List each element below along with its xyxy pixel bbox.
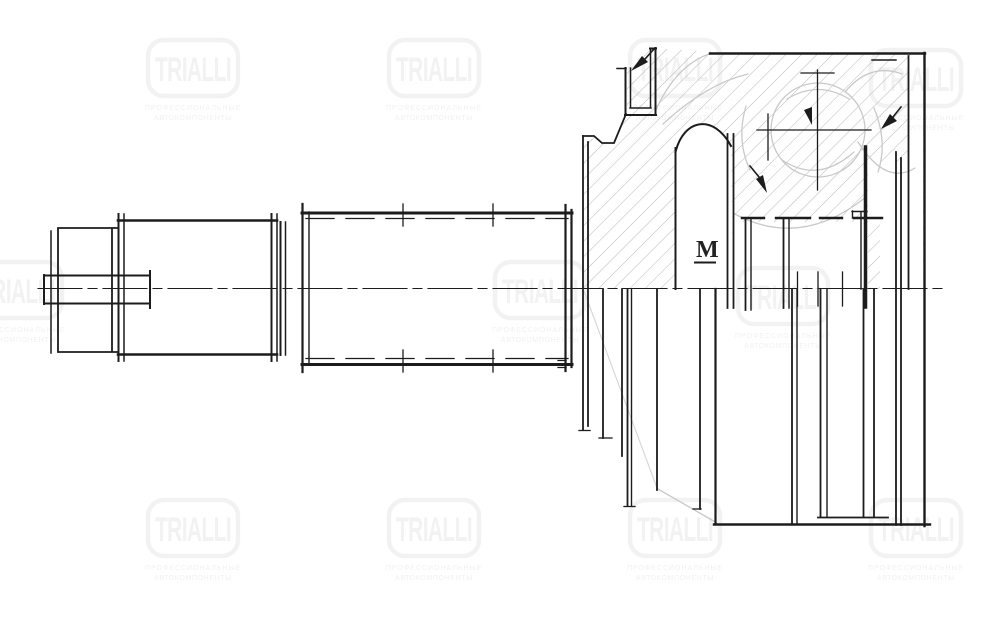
trialli-watermark: TRIALLI ПРОФЕССИОНАЛЬНЫЕ АВТОКОМПОНЕНТЫ xyxy=(492,262,588,344)
svg-text:ПРОФЕССИОНАЛЬНЫЕ: ПРОФЕССИОНАЛЬНЫЕ xyxy=(145,565,241,572)
cv-joint-outer-drawing: TRIALLI ПРОФЕССИОНАЛЬНЫЕ АВТОКОМПОНЕНТЫ … xyxy=(0,0,986,632)
svg-text:АВТОКОМПОНЕНТЫ: АВТОКОМПОНЕНТЫ xyxy=(0,337,56,344)
svg-text:АВТОКОМПОНЕНТЫ: АВТОКОМПОНЕНТЫ xyxy=(501,337,579,344)
trialli-watermark: TRIALLI ПРОФЕССИОНАЛЬНЫЕ АВТОКОМПОНЕНТЫ xyxy=(145,40,241,122)
watermark-brand-text: TRIALLI xyxy=(155,51,231,89)
svg-text:TRIALLI: TRIALLI xyxy=(396,511,472,549)
spline-shaft-left-section xyxy=(118,214,286,361)
svg-text:TRIALLI: TRIALLI xyxy=(637,511,713,549)
trialli-watermark: TRIALLI ПРОФЕССИОНАЛЬНЫЕ АВТОКОМПОНЕНТЫ xyxy=(627,500,723,582)
svg-text:ПРОФЕССИОНАЛЬНЫЕ: ПРОФЕССИОНАЛЬНЫЕ xyxy=(386,105,482,112)
svg-text:АВТОКОМПОНЕНТЫ: АВТОКОМПОНЕНТЫ xyxy=(877,575,955,582)
cv-joint-technical-drawing-page: TRIALLI ПРОФЕССИОНАЛЬНЫЕ АВТОКОМПОНЕНТЫ … xyxy=(0,0,986,632)
svg-text:ПРОФЕССИОНАЛЬНЫЕ: ПРОФЕССИОНАЛЬНЫЕ xyxy=(386,565,482,572)
svg-text:ПРОФЕССИОНАЛЬНЫЕ: ПРОФЕССИОНАЛЬНЫЕ xyxy=(0,327,65,334)
thread-label-group: M xyxy=(695,237,719,263)
svg-text:ПРОФЕССИОНАЛЬНЫЕ: ПРОФЕССИОНАЛЬНЫЕ xyxy=(735,333,831,340)
svg-text:TRIALLI: TRIALLI xyxy=(878,511,954,549)
trialli-watermark: TRIALLI ПРОФЕССИОНАЛЬНЫЕ АВТОКОМПОНЕНТЫ xyxy=(868,500,964,582)
housing-section-hatch xyxy=(584,48,924,289)
boot-cone-ghost-line xyxy=(584,291,657,488)
svg-text:АВТОКОМПОНЕНТЫ: АВТОКОМПОНЕНТЫ xyxy=(744,343,822,350)
svg-text:TRIALLI: TRIALLI xyxy=(396,51,472,89)
svg-text:ПРОФЕССИОНАЛЬНЫЕ: ПРОФЕССИОНАЛЬНЫЕ xyxy=(868,565,964,572)
trialli-watermark: TRIALLI ПРОФЕССИОНАЛЬНЫЕ АВТОКОМПОНЕНТЫ xyxy=(145,500,241,582)
trialli-watermark: TRIALLI ПРОФЕССИОНАЛЬНЫЕ АВТОКОМПОНЕНТЫ xyxy=(386,40,482,122)
svg-text:ПРОФЕССИОНАЛЬНЫЕ: ПРОФЕССИОНАЛЬНЫЕ xyxy=(627,565,723,572)
svg-text:TRIALLI: TRIALLI xyxy=(155,511,231,549)
svg-text:АВТОКОМПОНЕНТЫ: АВТОКОМПОНЕНТЫ xyxy=(395,115,473,122)
thread-label: M xyxy=(696,237,719,263)
svg-text:АВТОКОМПОНЕНТЫ: АВТОКОМПОНЕНТЫ xyxy=(636,575,714,582)
trialli-watermark: TRIALLI ПРОФЕССИОНАЛЬНЫЕ АВТОКОМПОНЕНТЫ xyxy=(386,500,482,582)
svg-text:TRIALLI: TRIALLI xyxy=(0,273,55,311)
watermark-subtext: АВТОКОМПОНЕНТЫ xyxy=(154,115,232,122)
watermark-subtext: ПРОФЕССИОНАЛЬНЫЕ xyxy=(145,105,241,112)
svg-text:АВТОКОМПОНЕНТЫ: АВТОКОМПОНЕНТЫ xyxy=(395,575,473,582)
svg-text:АВТОКОМПОНЕНТЫ: АВТОКОМПОНЕНТЫ xyxy=(154,575,232,582)
svg-text:ПРОФЕССИОНАЛЬНЫЕ: ПРОФЕССИОНАЛЬНЫЕ xyxy=(492,327,588,334)
